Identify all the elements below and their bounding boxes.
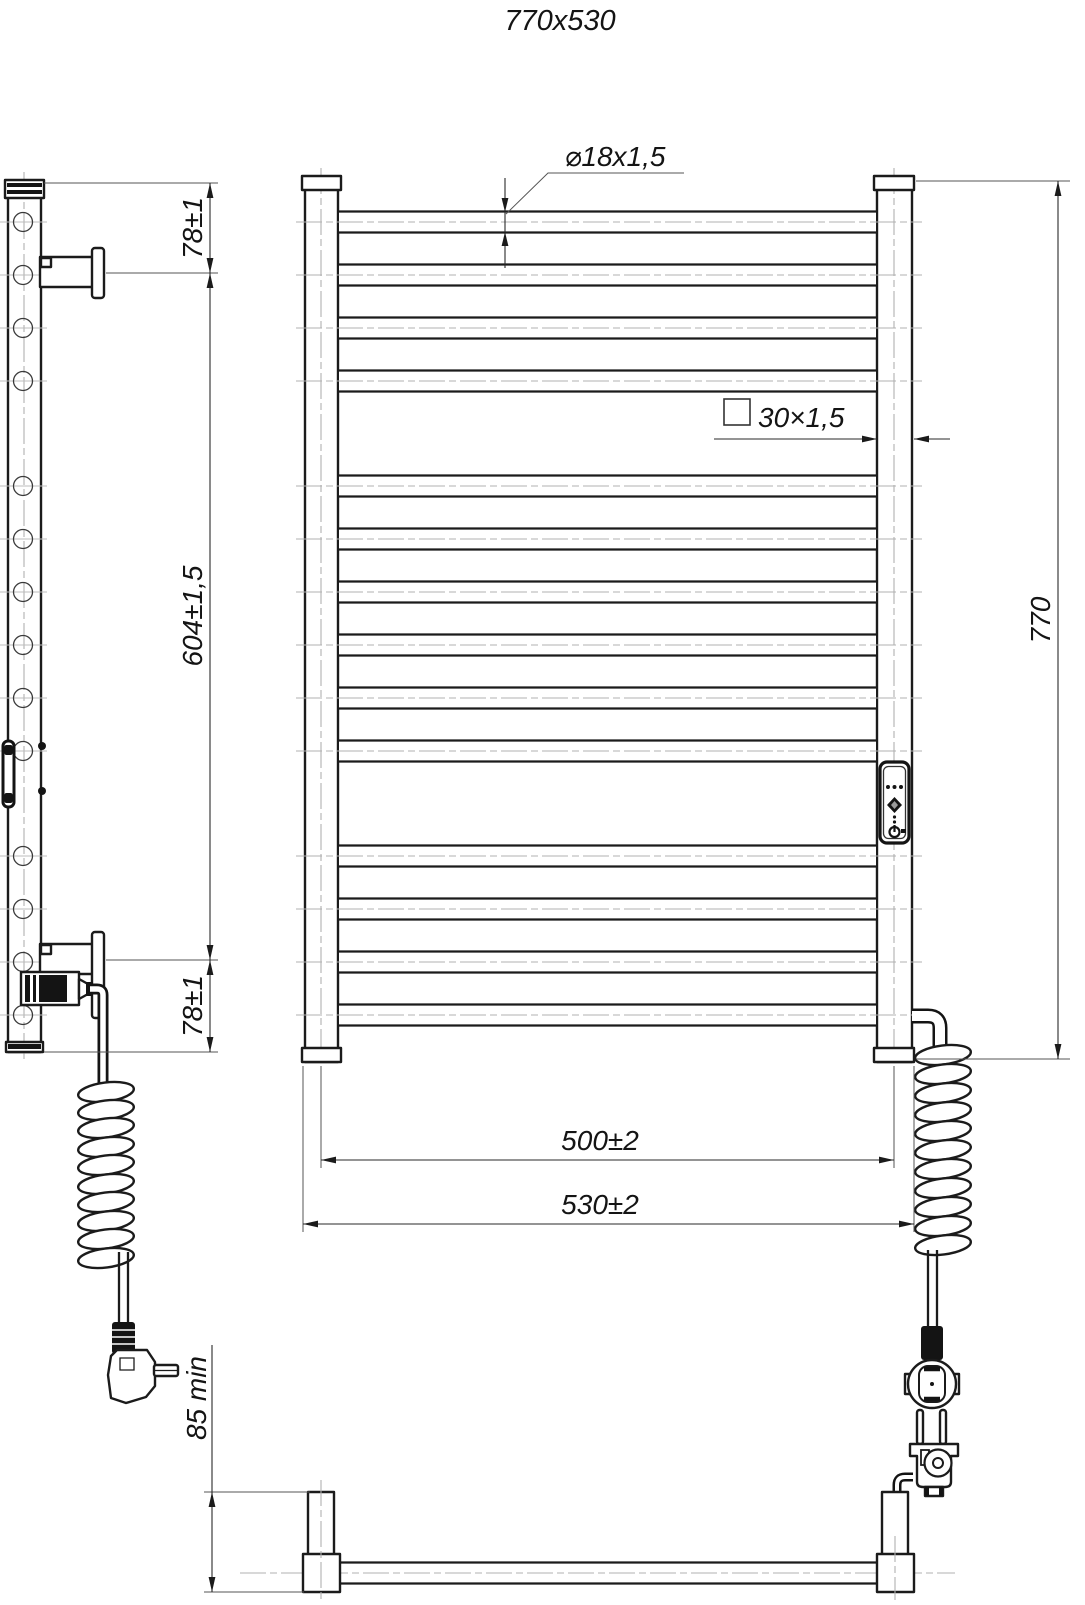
tube-diameter-label: ⌀18x1,5	[565, 141, 666, 172]
tube-rung	[296, 899, 922, 920]
plug-pin	[917, 1410, 923, 1444]
tube-rung	[296, 476, 922, 497]
tube-rung	[296, 318, 922, 339]
bottom-bracket-label: 78±1	[177, 975, 208, 1037]
wall-clearance-label: 85 min	[181, 1356, 212, 1440]
tube-rung	[296, 529, 922, 550]
technical-drawing-page: 770x530 ⌀18x1,5 30×1,5 770	[0, 0, 1085, 1600]
tube-rung	[296, 265, 922, 286]
tube-rung	[296, 635, 922, 656]
tube-rung	[296, 741, 922, 762]
overall-width-label: 530±2	[561, 1189, 639, 1220]
top-bracket-label: 78±1	[177, 197, 208, 259]
drawing-title: 770x530	[504, 5, 615, 37]
coiled-cable	[914, 1042, 972, 1258]
right-post-bottom-cap	[874, 1048, 914, 1062]
profile-label: 30×1,5	[758, 402, 845, 433]
tube-rung	[296, 688, 922, 709]
indicator-dot	[886, 785, 890, 789]
indicator-dot	[893, 815, 896, 818]
power-key-detail	[901, 829, 906, 833]
bracket-span-label: 604±1,5	[177, 565, 208, 666]
tube-rung	[296, 846, 922, 867]
towel-rail-drawing: 770x530 ⌀18x1,5 30×1,5 770	[0, 0, 1085, 1600]
tube-rung	[296, 582, 922, 603]
mounting-stud	[38, 742, 46, 750]
tube-rung	[296, 212, 922, 233]
left-post-bottom-cap	[302, 1048, 341, 1062]
plug-pin	[940, 1410, 946, 1444]
control-panel	[880, 762, 909, 843]
cable-sleeve	[921, 1326, 943, 1360]
left-post-top-cap	[302, 176, 341, 190]
tube-rung	[296, 952, 922, 973]
indicator-dot	[893, 820, 896, 823]
center-width-label: 500±2	[561, 1125, 639, 1156]
indicator-dot	[893, 785, 897, 789]
height-label: 770	[1025, 596, 1056, 643]
plug-boss	[925, 1450, 952, 1477]
indicator-dot	[899, 785, 903, 789]
tube-rung	[296, 371, 922, 392]
right-post-top-cap	[874, 176, 914, 190]
tube-rung	[296, 1005, 922, 1026]
side-top-cap	[5, 180, 44, 198]
mounting-stud	[38, 787, 46, 795]
drawing-background	[0, 0, 1085, 1600]
